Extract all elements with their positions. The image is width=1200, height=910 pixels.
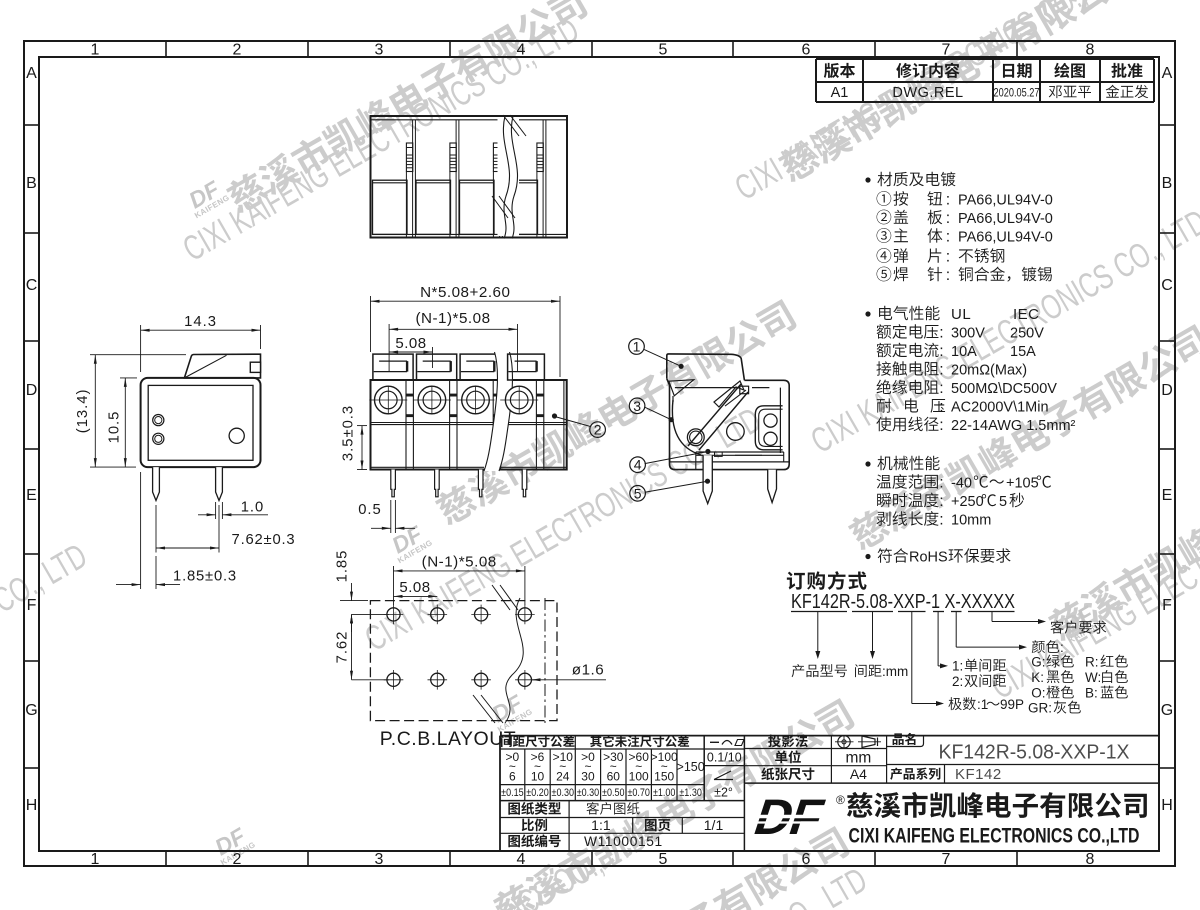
svg-text:4: 4 bbox=[634, 457, 642, 473]
svg-text:P.C.B.LAYOUT: P.C.B.LAYOUT bbox=[380, 728, 516, 750]
svg-text:B: B bbox=[1162, 175, 1173, 192]
svg-text:6: 6 bbox=[802, 851, 811, 868]
svg-text::: : bbox=[939, 512, 943, 529]
svg-text:(N-1)*5.08: (N-1)*5.08 bbox=[422, 554, 497, 571]
svg-text:5: 5 bbox=[999, 494, 1007, 510]
svg-text:PA66,UL94V-0: PA66,UL94V-0 bbox=[958, 230, 1053, 246]
svg-text:5.08: 5.08 bbox=[395, 335, 426, 352]
svg-text:10mm: 10mm bbox=[951, 513, 991, 529]
svg-text:±0.30: ±0.30 bbox=[552, 787, 575, 799]
svg-text:0.5: 0.5 bbox=[358, 502, 382, 518]
svg-text:1:: 1: bbox=[952, 659, 963, 674]
svg-text:6: 6 bbox=[802, 42, 811, 59]
svg-text::: : bbox=[939, 475, 943, 492]
svg-text:5: 5 bbox=[659, 851, 668, 868]
svg-text::: : bbox=[946, 267, 950, 284]
svg-text:150: 150 bbox=[654, 770, 674, 784]
svg-text:R:: R: bbox=[1085, 655, 1099, 670]
svg-text:B:: B: bbox=[1085, 686, 1098, 701]
svg-text:10.5: 10.5 bbox=[107, 411, 123, 444]
svg-text:UL: UL bbox=[951, 306, 971, 323]
svg-text:AC2000V\1Min: AC2000V\1Min bbox=[951, 400, 1049, 416]
svg-text:300V: 300V bbox=[951, 326, 985, 342]
svg-text:+105: +105 bbox=[1006, 476, 1039, 492]
svg-text:±0.50: ±0.50 bbox=[602, 787, 625, 799]
svg-text:A: A bbox=[1162, 65, 1173, 82]
svg-text:A4: A4 bbox=[850, 766, 867, 782]
svg-text:2: 2 bbox=[594, 422, 602, 438]
svg-text:GR:: GR: bbox=[1028, 701, 1052, 716]
svg-text:6: 6 bbox=[509, 770, 516, 784]
svg-text:500MΩ\DC500V: 500MΩ\DC500V bbox=[951, 381, 1057, 397]
svg-text:0.1/10: 0.1/10 bbox=[707, 751, 742, 765]
svg-text:DWG.REL: DWG.REL bbox=[892, 85, 963, 101]
svg-text:(13.4): (13.4) bbox=[75, 389, 91, 434]
svg-text:C: C bbox=[26, 277, 38, 294]
svg-text:1: 1 bbox=[91, 42, 100, 59]
svg-text:F: F bbox=[1162, 597, 1172, 614]
svg-text:H: H bbox=[26, 797, 38, 814]
svg-text:1: 1 bbox=[633, 339, 641, 355]
svg-text::: : bbox=[946, 192, 950, 209]
svg-text:W:: W: bbox=[1085, 670, 1101, 685]
svg-text:(N-1)*5.08: (N-1)*5.08 bbox=[415, 310, 490, 327]
svg-text::: : bbox=[939, 399, 943, 416]
svg-text:-40: -40 bbox=[951, 476, 972, 492]
svg-text:3: 3 bbox=[375, 851, 384, 868]
svg-text:D: D bbox=[26, 382, 38, 399]
svg-text:A: A bbox=[26, 65, 37, 82]
svg-text:1.85±0.3: 1.85±0.3 bbox=[173, 569, 237, 585]
svg-text:RoHS: RoHS bbox=[909, 550, 948, 566]
svg-text:4: 4 bbox=[517, 42, 526, 59]
svg-text:14.3: 14.3 bbox=[184, 314, 217, 330]
svg-text:7.62±0.3: 7.62±0.3 bbox=[232, 532, 296, 548]
svg-text:B: B bbox=[26, 175, 37, 192]
svg-text::: : bbox=[946, 229, 950, 246]
svg-text:IEC: IEC bbox=[1013, 306, 1040, 323]
svg-text:2020.05.27: 2020.05.27 bbox=[994, 86, 1040, 100]
svg-text:KF142R-5.08-XXP-1 X-XXXXX: KF142R-5.08-XXP-1 X-XXXXX bbox=[791, 591, 1015, 613]
svg-text::mm: :mm bbox=[882, 664, 908, 679]
svg-text:C: C bbox=[1161, 277, 1173, 294]
svg-text:>150: >150 bbox=[677, 760, 705, 774]
svg-text:1: 1 bbox=[91, 851, 100, 868]
svg-text:7: 7 bbox=[942, 42, 951, 59]
svg-text:2: 2 bbox=[233, 42, 242, 59]
svg-text:N*5.08+2.60: N*5.08+2.60 bbox=[420, 284, 510, 301]
svg-text:3: 3 bbox=[375, 42, 384, 59]
svg-text:24: 24 bbox=[556, 770, 570, 784]
svg-text:7.62: 7.62 bbox=[335, 631, 351, 664]
svg-text:O:: O: bbox=[1031, 686, 1045, 701]
svg-text:KF142R-5.08-XXP-1X: KF142R-5.08-XXP-1X bbox=[939, 742, 1130, 764]
svg-text:5: 5 bbox=[634, 485, 642, 501]
svg-text::: : bbox=[946, 210, 950, 227]
svg-text:5.08: 5.08 bbox=[399, 579, 430, 596]
svg-text:30: 30 bbox=[581, 770, 595, 784]
svg-text::: : bbox=[946, 249, 950, 266]
svg-text:KF142: KF142 bbox=[955, 766, 1002, 783]
svg-text:G: G bbox=[25, 702, 37, 719]
svg-text:F: F bbox=[27, 597, 37, 614]
svg-text:99P: 99P bbox=[1000, 697, 1024, 712]
svg-text::: : bbox=[939, 362, 943, 379]
svg-text:15A: 15A bbox=[1010, 344, 1036, 360]
svg-text:4: 4 bbox=[517, 851, 526, 868]
svg-text:W11000151: W11000151 bbox=[584, 834, 663, 849]
svg-text:mm: mm bbox=[845, 750, 871, 767]
svg-text::: : bbox=[939, 493, 943, 510]
svg-text:K:: K: bbox=[1031, 670, 1044, 685]
svg-text:250V: 250V bbox=[1010, 326, 1044, 342]
svg-text:±1.00: ±1.00 bbox=[653, 787, 676, 799]
svg-text:20mΩ(Max): 20mΩ(Max) bbox=[951, 363, 1027, 379]
svg-text:100: 100 bbox=[629, 770, 649, 784]
svg-text:E: E bbox=[1162, 487, 1173, 504]
svg-text:3: 3 bbox=[633, 398, 641, 414]
svg-text:±0.15: ±0.15 bbox=[501, 787, 524, 799]
svg-text:D: D bbox=[1161, 382, 1173, 399]
svg-text:±0.20: ±0.20 bbox=[526, 787, 549, 799]
svg-text:G:: G: bbox=[1031, 655, 1045, 670]
svg-text:5: 5 bbox=[659, 42, 668, 59]
svg-text:±1.30: ±1.30 bbox=[679, 787, 702, 799]
svg-text:+250: +250 bbox=[951, 494, 984, 510]
svg-text:G: G bbox=[1161, 702, 1173, 719]
svg-text:1/1: 1/1 bbox=[704, 817, 724, 833]
svg-text:2: 2 bbox=[233, 851, 242, 868]
svg-text::: : bbox=[939, 380, 943, 397]
svg-text:A1: A1 bbox=[831, 85, 849, 101]
svg-text:±0.70: ±0.70 bbox=[627, 787, 650, 799]
svg-text:PA66,UL94V-0: PA66,UL94V-0 bbox=[958, 193, 1053, 209]
svg-text:2:: 2: bbox=[952, 674, 963, 689]
svg-text:8: 8 bbox=[1086, 42, 1095, 59]
svg-text::: : bbox=[1060, 640, 1064, 655]
svg-text::: : bbox=[939, 343, 943, 360]
svg-text::1: :1 bbox=[977, 697, 988, 712]
svg-text:1:1: 1:1 bbox=[591, 817, 611, 833]
svg-text:H: H bbox=[1161, 797, 1173, 814]
svg-text:22-14AWG 1.5mm²: 22-14AWG 1.5mm² bbox=[951, 418, 1076, 434]
svg-text:8: 8 bbox=[1086, 851, 1095, 868]
svg-text:E: E bbox=[26, 487, 37, 504]
svg-text:CIXI KAIFENG ELECTRONICS CO.,L: CIXI KAIFENG ELECTRONICS CO.,LTD bbox=[849, 824, 1140, 848]
svg-text:1.0: 1.0 bbox=[241, 500, 265, 516]
svg-text::: : bbox=[939, 417, 943, 434]
svg-text:10: 10 bbox=[531, 770, 545, 784]
svg-text:3.5±0.3: 3.5±0.3 bbox=[341, 405, 357, 461]
svg-text:±2°: ±2° bbox=[714, 786, 733, 800]
svg-text::: : bbox=[939, 325, 943, 342]
svg-text:1.85: 1.85 bbox=[335, 550, 351, 583]
svg-text:PA66,UL94V-0: PA66,UL94V-0 bbox=[958, 211, 1053, 227]
svg-text:7: 7 bbox=[942, 851, 951, 868]
svg-text:ø1.6: ø1.6 bbox=[572, 662, 604, 679]
svg-text:®: ® bbox=[836, 793, 845, 807]
svg-text:60: 60 bbox=[607, 770, 621, 784]
svg-text:±0.30: ±0.30 bbox=[577, 787, 600, 799]
svg-text:10A: 10A bbox=[951, 344, 977, 360]
